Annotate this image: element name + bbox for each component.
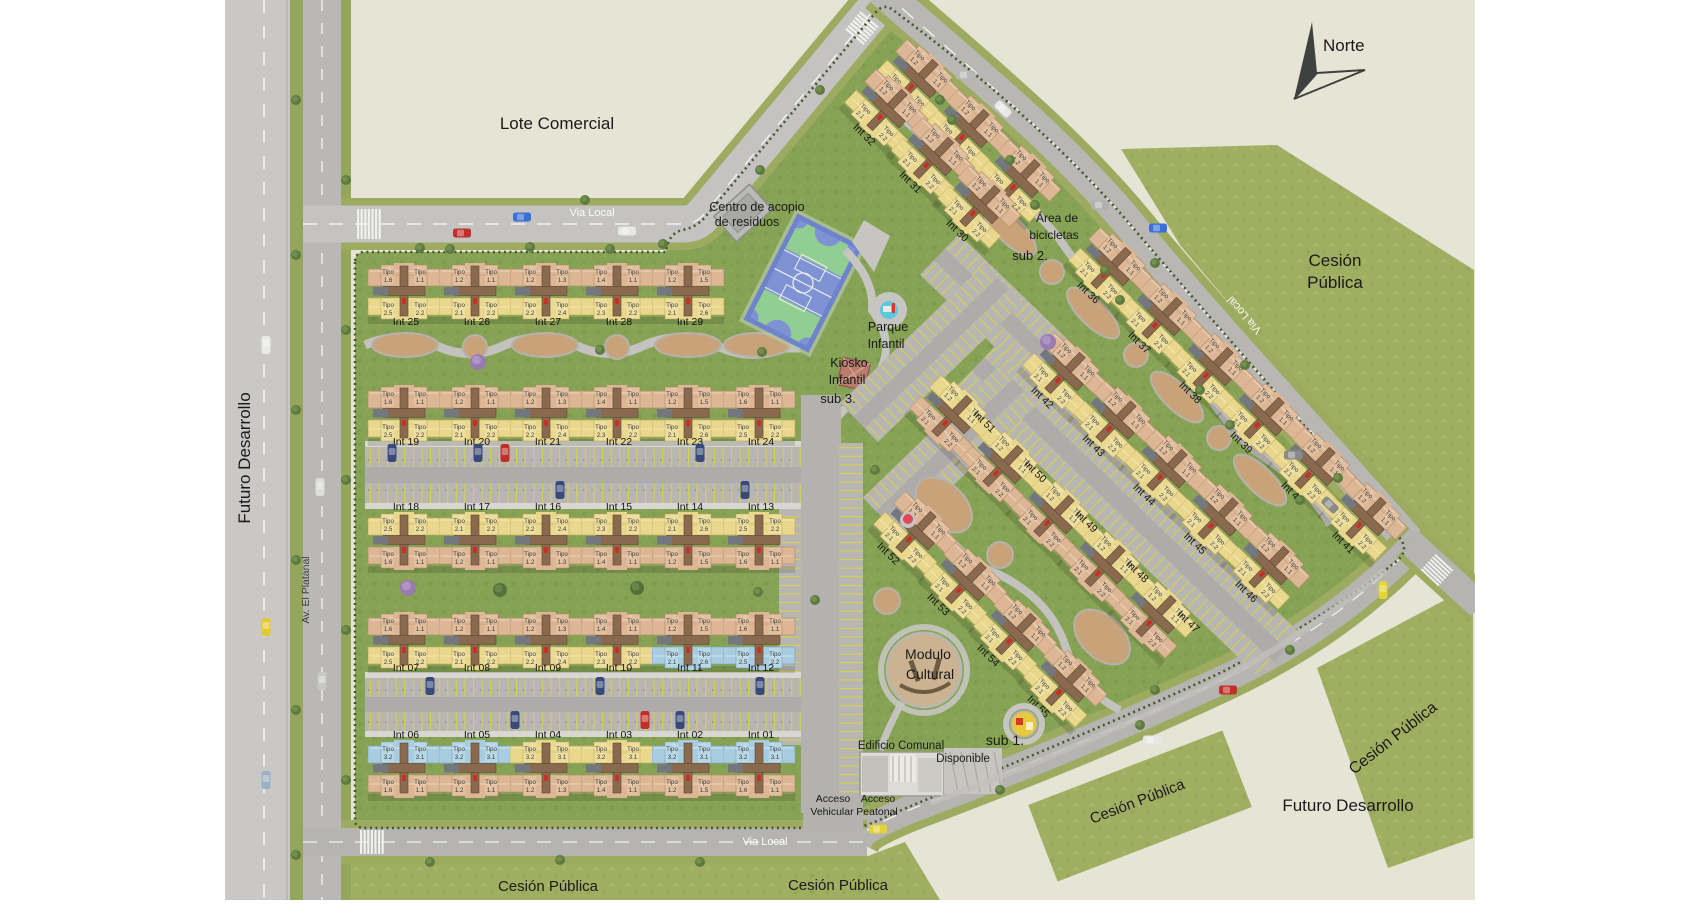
svg-text:1.4: 1.4 [597, 559, 606, 566]
svg-text:1.6: 1.6 [739, 787, 748, 794]
svg-text:1.1: 1.1 [771, 626, 780, 633]
svg-text:Tipo: Tipo [698, 302, 710, 309]
svg-text:Tipo: Tipo [485, 518, 497, 525]
svg-text:Int 01: Int 01 [748, 729, 774, 741]
svg-text:1.6: 1.6 [739, 399, 748, 406]
svg-text:Tipo: Tipo [485, 302, 497, 309]
svg-text:sub 1.: sub 1. [986, 732, 1024, 748]
svg-text:1.5: 1.5 [700, 559, 709, 566]
svg-text:1.6: 1.6 [384, 787, 393, 794]
svg-text:Tipo: Tipo [485, 551, 497, 558]
svg-text:Int 09: Int 09 [535, 662, 561, 674]
svg-text:1.2: 1.2 [668, 626, 677, 633]
svg-text:Tipo: Tipo [666, 618, 678, 625]
svg-text:Int 13: Int 13 [748, 501, 774, 513]
svg-text:2.5: 2.5 [739, 659, 748, 666]
svg-text:2.2: 2.2 [771, 526, 780, 533]
svg-text:1.3: 1.3 [558, 277, 567, 284]
svg-text:Disponible: Disponible [936, 753, 990, 765]
svg-text:Centro de acopio: Centro de acopio [709, 200, 804, 214]
svg-text:Tipo: Tipo [737, 518, 749, 525]
svg-text:Tipo: Tipo [414, 518, 426, 525]
svg-text:2.5: 2.5 [384, 310, 393, 317]
svg-text:Tipo: Tipo [627, 391, 639, 398]
svg-text:Int 17: Int 17 [464, 501, 490, 513]
svg-text:Tipo: Tipo [485, 779, 497, 786]
svg-text:1.1: 1.1 [629, 787, 638, 794]
svg-text:Tipo: Tipo [382, 424, 394, 431]
svg-text:2.2: 2.2 [416, 526, 425, 533]
svg-text:Tipo: Tipo [453, 746, 465, 753]
svg-text:1.1: 1.1 [487, 787, 496, 794]
svg-text:3.2: 3.2 [739, 754, 748, 761]
svg-text:Tipo: Tipo [556, 391, 568, 398]
svg-text:1.2: 1.2 [526, 787, 535, 794]
svg-text:Int 29: Int 29 [677, 316, 703, 328]
svg-text:2.1: 2.1 [455, 526, 464, 533]
svg-text:1.2: 1.2 [668, 787, 677, 794]
svg-text:1.6: 1.6 [384, 277, 393, 284]
svg-text:1.2: 1.2 [526, 626, 535, 633]
svg-text:Tipo: Tipo [627, 269, 639, 276]
svg-text:Int 27: Int 27 [535, 316, 561, 328]
svg-text:Tipo: Tipo [382, 651, 394, 658]
svg-text:Tipo: Tipo [769, 391, 781, 398]
svg-text:2.2: 2.2 [629, 526, 638, 533]
svg-text:Tipo: Tipo [382, 779, 394, 786]
svg-text:Tipo: Tipo [627, 618, 639, 625]
svg-text:Tipo: Tipo [485, 424, 497, 431]
svg-text:Tipo: Tipo [627, 746, 639, 753]
svg-text:Tipo: Tipo [414, 618, 426, 625]
svg-text:Tipo: Tipo [524, 651, 536, 658]
svg-text:Via Local: Via Local [569, 207, 614, 219]
svg-text:Tipo: Tipo [595, 424, 607, 431]
svg-text:Int 16: Int 16 [535, 501, 561, 513]
svg-text:3.2: 3.2 [597, 754, 606, 761]
svg-text:Tipo: Tipo [737, 424, 749, 431]
svg-text:Int 03: Int 03 [606, 729, 632, 741]
svg-text:3.2: 3.2 [384, 754, 393, 761]
svg-text:2.1: 2.1 [455, 432, 464, 439]
svg-text:2.2: 2.2 [526, 659, 535, 666]
svg-text:2.1: 2.1 [668, 526, 677, 533]
svg-text:Tipo: Tipo [453, 391, 465, 398]
svg-text:Tipo: Tipo [524, 302, 536, 309]
svg-text:Tipo: Tipo [485, 269, 497, 276]
svg-text:Tipo: Tipo [524, 779, 536, 786]
svg-text:1.2: 1.2 [526, 399, 535, 406]
svg-text:1.1: 1.1 [416, 559, 425, 566]
svg-text:Int 19: Int 19 [393, 436, 419, 448]
svg-text:Cesión Pública: Cesión Pública [498, 878, 599, 895]
svg-text:Tipo: Tipo [769, 779, 781, 786]
svg-text:1.1: 1.1 [416, 277, 425, 284]
svg-text:Tipo: Tipo [737, 651, 749, 658]
svg-text:Tipo: Tipo [769, 551, 781, 558]
svg-text:2.2: 2.2 [526, 432, 535, 439]
svg-text:Tipo: Tipo [524, 424, 536, 431]
svg-text:Futuro Desarrollo: Futuro Desarrollo [235, 392, 254, 523]
svg-text:Tipo: Tipo [698, 651, 710, 658]
svg-text:Int 18: Int 18 [393, 501, 419, 513]
svg-text:1.3: 1.3 [558, 559, 567, 566]
svg-text:Tipo: Tipo [698, 269, 710, 276]
svg-text:2.1: 2.1 [455, 659, 464, 666]
svg-text:3.1: 3.1 [487, 754, 496, 761]
svg-text:1.6: 1.6 [384, 626, 393, 633]
svg-text:Tipo: Tipo [556, 651, 568, 658]
svg-text:1.1: 1.1 [487, 277, 496, 284]
svg-text:Int 07: Int 07 [393, 662, 419, 674]
svg-text:1.2: 1.2 [668, 559, 677, 566]
svg-text:3.2: 3.2 [668, 754, 677, 761]
svg-text:1.5: 1.5 [700, 277, 709, 284]
svg-text:2.1: 2.1 [668, 659, 677, 666]
svg-text:Tipo: Tipo [556, 551, 568, 558]
svg-text:2.2: 2.2 [487, 526, 496, 533]
svg-text:3.1: 3.1 [700, 754, 709, 761]
svg-text:Cesión Pública: Cesión Pública [788, 877, 889, 894]
svg-text:1.1: 1.1 [416, 787, 425, 794]
svg-text:Tipo: Tipo [382, 302, 394, 309]
svg-text:Tipo: Tipo [595, 269, 607, 276]
svg-text:Tipo: Tipo [382, 518, 394, 525]
svg-text:1.1: 1.1 [487, 559, 496, 566]
svg-text:1.1: 1.1 [416, 626, 425, 633]
svg-text:2.5: 2.5 [739, 432, 748, 439]
svg-text:Tipo: Tipo [737, 618, 749, 625]
svg-text:Int 05: Int 05 [464, 729, 490, 741]
svg-text:Tipo: Tipo [595, 391, 607, 398]
svg-text:2.3: 2.3 [597, 659, 606, 666]
svg-text:3.1: 3.1 [771, 754, 780, 761]
svg-text:2.1: 2.1 [668, 310, 677, 317]
svg-text:3.1: 3.1 [416, 754, 425, 761]
svg-text:1.1: 1.1 [416, 399, 425, 406]
svg-text:1.1: 1.1 [771, 399, 780, 406]
svg-text:3.1: 3.1 [629, 754, 638, 761]
svg-text:Int 10: Int 10 [606, 662, 632, 674]
svg-text:2.3: 2.3 [597, 310, 606, 317]
svg-text:Tipo: Tipo [414, 651, 426, 658]
svg-text:2.3: 2.3 [597, 432, 606, 439]
svg-text:Tipo: Tipo [698, 618, 710, 625]
svg-text:3.2: 3.2 [455, 754, 464, 761]
svg-text:Tipo: Tipo [453, 779, 465, 786]
svg-text:sub 3.: sub 3. [820, 391, 855, 406]
svg-text:1.2: 1.2 [455, 559, 464, 566]
svg-text:Edificio Comunal: Edificio Comunal [858, 740, 944, 752]
svg-text:1.4: 1.4 [597, 626, 606, 633]
svg-text:Tipo: Tipo [666, 518, 678, 525]
svg-text:Futuro Desarrollo: Futuro Desarrollo [1282, 796, 1413, 815]
svg-text:1.3: 1.3 [558, 399, 567, 406]
svg-text:bicicletas: bicicletas [1029, 228, 1078, 242]
svg-text:1.5: 1.5 [700, 626, 709, 633]
svg-text:Int 11: Int 11 [677, 662, 703, 674]
svg-text:Tipo: Tipo [737, 779, 749, 786]
svg-text:1.5: 1.5 [700, 787, 709, 794]
svg-text:Peatonal: Peatonal [856, 806, 897, 818]
svg-text:1.1: 1.1 [487, 626, 496, 633]
svg-text:Tipo: Tipo [485, 618, 497, 625]
svg-text:Tipo: Tipo [666, 551, 678, 558]
svg-text:Int 22: Int 22 [606, 436, 632, 448]
svg-text:Tipo: Tipo [524, 746, 536, 753]
svg-text:Int 26: Int 26 [464, 316, 490, 328]
svg-text:2.1: 2.1 [668, 432, 677, 439]
svg-text:Vehicular: Vehicular [810, 806, 854, 818]
svg-text:1.4: 1.4 [597, 399, 606, 406]
svg-text:Tipo: Tipo [595, 651, 607, 658]
svg-text:Int 08: Int 08 [464, 662, 490, 674]
svg-text:de residuos: de residuos [715, 215, 780, 229]
svg-text:1.2: 1.2 [455, 787, 464, 794]
svg-text:Tipo: Tipo [595, 302, 607, 309]
svg-text:Int 12: Int 12 [748, 662, 774, 674]
svg-text:1.2: 1.2 [526, 277, 535, 284]
svg-text:Int 06: Int 06 [393, 729, 419, 741]
svg-text:Int 14: Int 14 [677, 501, 703, 513]
svg-text:Tipo: Tipo [556, 618, 568, 625]
svg-text:Tipo: Tipo [485, 746, 497, 753]
svg-text:2.2: 2.2 [526, 310, 535, 317]
svg-text:Tipo: Tipo [698, 551, 710, 558]
svg-text:Tipo: Tipo [769, 424, 781, 431]
svg-text:Lote Comercial: Lote Comercial [500, 114, 614, 133]
svg-text:Tipo: Tipo [556, 424, 568, 431]
svg-text:1.1: 1.1 [629, 626, 638, 633]
svg-text:Tipo: Tipo [666, 302, 678, 309]
svg-text:Tipo: Tipo [524, 551, 536, 558]
svg-text:Infantil: Infantil [829, 373, 866, 387]
svg-text:2.5: 2.5 [384, 432, 393, 439]
svg-text:Tipo: Tipo [453, 518, 465, 525]
svg-text:1.6: 1.6 [739, 626, 748, 633]
svg-text:sub 2.: sub 2. [1012, 248, 1047, 263]
svg-text:Tipo: Tipo [698, 518, 710, 525]
svg-text:Tipo: Tipo [737, 391, 749, 398]
svg-text:2.1: 2.1 [455, 310, 464, 317]
svg-text:Tipo: Tipo [382, 269, 394, 276]
svg-text:Tipo: Tipo [769, 618, 781, 625]
svg-text:1.2: 1.2 [526, 559, 535, 566]
svg-text:Tipo: Tipo [666, 391, 678, 398]
svg-text:Acceso: Acceso [861, 793, 896, 805]
svg-text:1.1: 1.1 [771, 559, 780, 566]
svg-text:Int 28: Int 28 [606, 316, 632, 328]
svg-text:Tipo: Tipo [595, 518, 607, 525]
svg-text:1.2: 1.2 [668, 399, 677, 406]
svg-text:Pública: Pública [1307, 273, 1363, 292]
svg-text:Tipo: Tipo [666, 746, 678, 753]
svg-text:1.6: 1.6 [384, 399, 393, 406]
svg-text:Tipo: Tipo [524, 518, 536, 525]
svg-text:Tipo: Tipo [453, 424, 465, 431]
svg-text:1.1: 1.1 [629, 277, 638, 284]
svg-text:Tipo: Tipo [414, 269, 426, 276]
svg-text:Tipo: Tipo [737, 746, 749, 753]
svg-text:Tipo: Tipo [698, 746, 710, 753]
svg-text:Tipo: Tipo [414, 391, 426, 398]
svg-text:Tipo: Tipo [769, 651, 781, 658]
svg-text:Tipo: Tipo [556, 302, 568, 309]
svg-text:Tipo: Tipo [414, 302, 426, 309]
svg-text:Tipo: Tipo [485, 391, 497, 398]
svg-text:Tipo: Tipo [627, 424, 639, 431]
svg-text:1.4: 1.4 [597, 277, 606, 284]
svg-text:Tipo: Tipo [556, 746, 568, 753]
svg-text:Tipo: Tipo [627, 518, 639, 525]
svg-text:Modulo: Modulo [905, 646, 951, 662]
svg-text:Cesión: Cesión [1309, 251, 1362, 270]
svg-text:Parque: Parque [868, 320, 908, 334]
svg-text:Tipo: Tipo [627, 651, 639, 658]
svg-text:Tipo: Tipo [627, 779, 639, 786]
svg-text:Tipo: Tipo [414, 779, 426, 786]
svg-text:Tipo: Tipo [595, 779, 607, 786]
svg-text:Tipo: Tipo [556, 269, 568, 276]
svg-text:Tipo: Tipo [453, 651, 465, 658]
svg-text:Tipo: Tipo [524, 269, 536, 276]
svg-text:Tipo: Tipo [382, 746, 394, 753]
svg-text:Tipo: Tipo [414, 746, 426, 753]
svg-text:1.1: 1.1 [629, 559, 638, 566]
svg-text:Tipo: Tipo [666, 779, 678, 786]
svg-text:3.1: 3.1 [558, 754, 567, 761]
svg-text:2.5: 2.5 [739, 526, 748, 533]
svg-text:Tipo: Tipo [627, 551, 639, 558]
svg-text:1.2: 1.2 [668, 277, 677, 284]
svg-text:1.6: 1.6 [384, 559, 393, 566]
svg-text:Tipo: Tipo [595, 551, 607, 558]
svg-text:2.5: 2.5 [384, 659, 393, 666]
svg-text:Tipo: Tipo [666, 424, 678, 431]
svg-text:Av. El Platanal: Av. El Platanal [300, 556, 312, 623]
svg-text:1.6: 1.6 [739, 559, 748, 566]
svg-text:Tipo: Tipo [666, 651, 678, 658]
svg-text:1.3: 1.3 [558, 787, 567, 794]
svg-text:1.1: 1.1 [771, 787, 780, 794]
svg-text:Tipo: Tipo [737, 551, 749, 558]
svg-text:Tipo: Tipo [453, 551, 465, 558]
svg-text:Tipo: Tipo [595, 746, 607, 753]
svg-text:Tipo: Tipo [769, 518, 781, 525]
svg-text:Int 02: Int 02 [677, 729, 703, 741]
svg-text:Tipo: Tipo [666, 269, 678, 276]
svg-text:2.6: 2.6 [700, 526, 709, 533]
svg-text:2.4: 2.4 [558, 526, 567, 533]
svg-text:Cultural: Cultural [906, 666, 954, 682]
svg-text:Tipo: Tipo [524, 391, 536, 398]
svg-text:1.2: 1.2 [455, 277, 464, 284]
svg-text:Via Local: Via Local [742, 836, 787, 848]
svg-text:Int 15: Int 15 [606, 501, 632, 513]
svg-text:Int 21: Int 21 [535, 436, 561, 448]
svg-text:Tipo: Tipo [453, 302, 465, 309]
svg-text:2.2: 2.2 [526, 526, 535, 533]
svg-text:Int 25: Int 25 [393, 316, 419, 328]
svg-text:1.3: 1.3 [558, 626, 567, 633]
svg-text:Tipo: Tipo [453, 618, 465, 625]
svg-text:Área de: Área de [1036, 210, 1078, 225]
svg-text:Norte: Norte [1323, 36, 1365, 55]
svg-text:Tipo: Tipo [382, 618, 394, 625]
svg-text:Tipo: Tipo [485, 651, 497, 658]
svg-text:2.3: 2.3 [597, 526, 606, 533]
svg-text:Tipo: Tipo [627, 302, 639, 309]
svg-text:Int 04: Int 04 [535, 729, 561, 741]
svg-text:Acceso: Acceso [816, 793, 851, 805]
svg-text:3.2: 3.2 [526, 754, 535, 761]
svg-text:Tipo: Tipo [382, 551, 394, 558]
svg-text:Tipo: Tipo [595, 618, 607, 625]
svg-text:1.1: 1.1 [629, 399, 638, 406]
svg-text:Tipo: Tipo [524, 618, 536, 625]
svg-text:Tipo: Tipo [769, 746, 781, 753]
svg-text:Tipo: Tipo [453, 269, 465, 276]
svg-text:Tipo: Tipo [698, 391, 710, 398]
svg-text:1.2: 1.2 [455, 626, 464, 633]
svg-text:Kiosko: Kiosko [830, 356, 868, 370]
svg-text:Tipo: Tipo [414, 424, 426, 431]
svg-text:Tipo: Tipo [556, 518, 568, 525]
svg-text:Infantil: Infantil [868, 337, 905, 351]
svg-text:1.2: 1.2 [455, 399, 464, 406]
svg-text:Int 24: Int 24 [748, 436, 774, 448]
svg-text:Tipo: Tipo [382, 391, 394, 398]
svg-text:1.5: 1.5 [700, 399, 709, 406]
svg-text:Tipo: Tipo [414, 551, 426, 558]
svg-text:Tipo: Tipo [698, 779, 710, 786]
svg-text:1.1: 1.1 [487, 399, 496, 406]
svg-text:2.5: 2.5 [384, 526, 393, 533]
svg-text:Tipo: Tipo [698, 424, 710, 431]
svg-text:1.4: 1.4 [597, 787, 606, 794]
svg-text:Tipo: Tipo [556, 779, 568, 786]
